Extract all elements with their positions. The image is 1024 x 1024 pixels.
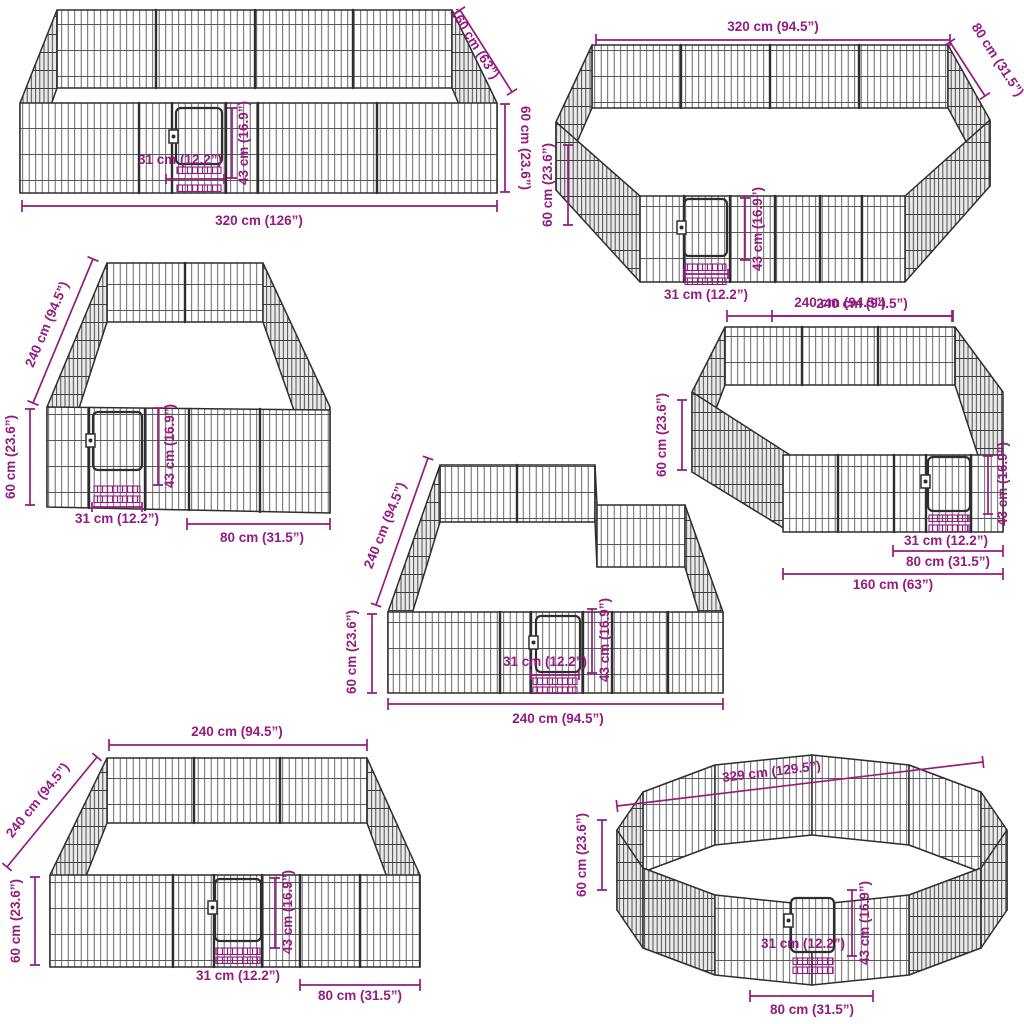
- dim-label-width-bottom: 240 cm (94.5”): [512, 711, 604, 726]
- dim-line-width-bottom: [388, 698, 723, 710]
- threshold-hatch: [177, 185, 221, 192]
- threshold-hatch: [533, 678, 577, 685]
- dim-label-height: 60 cm (23.6”): [3, 415, 18, 499]
- threshold-hatch: [685, 264, 726, 271]
- fence-far-wall: [812, 755, 909, 845]
- dim-line-height: [25, 409, 35, 505]
- pen-lshape-240x160: 240 cm (94.5”) 60 cm (23.6”) 43 cm (16.9…: [654, 295, 1010, 592]
- dim-label-gate-width: 31 cm (12.2”): [138, 152, 222, 167]
- fence-step-wall: [597, 505, 685, 567]
- dim-label-side: 80 cm (31.5”): [969, 20, 1024, 99]
- gate-knob-icon: [172, 135, 176, 139]
- dim-line-height: [500, 104, 510, 192]
- dim-label-gate-width: 31 cm (12.2”): [75, 511, 159, 526]
- dim-label-panel: 80 cm (31.5”): [906, 554, 990, 569]
- dim-label-gate-width: 31 cm (12.2”): [664, 287, 748, 302]
- threshold-hatch: [793, 967, 833, 974]
- pen-stepped-240x240: 240 cm (94.5”) 60 cm (23.6”) 43 cm (16.9…: [344, 456, 723, 726]
- dim-label-gate-height: 43 cm (16.9”): [236, 101, 251, 185]
- threshold-hatch: [929, 515, 969, 522]
- playpen-dimension-sheet: 43 cm (16.9”) 31 cm (12.2”) 320 cm (126”…: [0, 0, 1024, 1024]
- fence-far-wall: [909, 765, 981, 872]
- threshold-hatch: [94, 486, 140, 493]
- threshold-hatch: [929, 525, 969, 532]
- dim-label-width: 320 cm (126”): [215, 213, 303, 228]
- gate-door: [684, 199, 727, 256]
- diagram-canvas: 43 cm (16.9”) 31 cm (12.2”) 320 cm (126”…: [0, 0, 1024, 1024]
- pen-octagon-320x80: 320 cm (94.5”) 80 cm (31.5”) 60 cm (23.6…: [540, 19, 1024, 322]
- threshold-hatch: [94, 496, 140, 503]
- dim-label-gate-width: 31 cm (12.2”): [761, 936, 845, 951]
- threshold-hatch: [685, 278, 726, 285]
- threshold-hatch: [177, 167, 221, 174]
- dim-line-panel: [187, 518, 330, 530]
- dim-line-width-top: [727, 310, 953, 322]
- fence-back-wall: [725, 327, 955, 385]
- dim-label-gate-height: 43 cm (16.9”): [995, 442, 1010, 526]
- gate-door: [928, 457, 970, 511]
- gate-knob-icon: [680, 226, 684, 230]
- dim-label-panel: 80 cm (31.5”): [220, 530, 304, 545]
- dim-label-depth: 240 cm (94.5”): [361, 480, 409, 571]
- fence-back-wall: [107, 758, 367, 823]
- dim-label-gate-width: 31 cm (12.2”): [904, 533, 988, 548]
- dim-label-width-top: 240 cm (94.5”): [794, 295, 886, 310]
- dim-label-height: 60 cm (23.6”): [344, 610, 359, 694]
- dim-label-gate-height: 43 cm (16.9”): [280, 870, 295, 954]
- gate-knob-icon: [924, 480, 928, 484]
- dim-label-gate-height: 43 cm (16.9”): [597, 598, 612, 682]
- dim-label-gate-width: 31 cm (12.2”): [196, 968, 280, 983]
- dim-label-height: 60 cm (23.6”): [518, 106, 533, 190]
- dim-label-panel: 80 cm (31.5”): [770, 1002, 854, 1017]
- threshold-hatch: [793, 958, 833, 965]
- threshold-hatch: [533, 687, 577, 694]
- dim-label-depth: 240 cm (94.5”): [22, 279, 72, 369]
- dim-line-width-top: [109, 739, 367, 751]
- fence-far-wall: [643, 765, 715, 872]
- dim-label-gate-height: 43 cm (16.9”): [857, 881, 872, 965]
- dim-label-height: 60 cm (23.6”): [654, 393, 669, 477]
- dim-line-height: [30, 877, 40, 965]
- pen-rectangle-240x160: 240 cm (94.5”) 60 cm (23.6”) 43 cm (16.9…: [3, 257, 330, 545]
- dim-label-gate-width: 31 cm (12.2”): [503, 654, 587, 669]
- pen-ring-329: 329 cm (129.5”) 60 cm (23.6”) 43 cm (16.…: [574, 755, 1007, 1017]
- pen-square-240x240: 240 cm (94.5”) 240 cm (94.5”) 60 cm (23.…: [2, 724, 420, 1003]
- gate-door: [215, 879, 261, 941]
- dim-line-height: [367, 614, 377, 693]
- dim-label-gate-height: 43 cm (16.9”): [162, 404, 177, 488]
- dim-label-width-bottom: 160 cm (63”): [853, 577, 933, 592]
- dim-line-height: [677, 400, 687, 470]
- gate-knob-icon: [211, 906, 215, 910]
- threshold-hatch: [216, 948, 260, 955]
- pen-rectangle-320x160: 43 cm (16.9”) 31 cm (12.2”) 320 cm (126”…: [20, 6, 533, 228]
- fence-notch-wall: [692, 392, 790, 532]
- gate-knob-icon: [89, 439, 93, 443]
- dim-label-height: 60 cm (23.6”): [540, 143, 555, 227]
- dim-label-width-top: 240 cm (94.5”): [191, 724, 283, 739]
- dim-line-width-top: [596, 34, 950, 46]
- fence-front-wall: [640, 196, 905, 282]
- dim-label-panel: 80 cm (31.5”): [318, 988, 402, 1003]
- threshold-hatch: [216, 957, 260, 964]
- gate-knob-icon: [787, 919, 791, 923]
- fence-near-wall: [643, 868, 715, 975]
- gate-door: [93, 412, 142, 470]
- fence-near-wall: [909, 868, 981, 975]
- dim-label-height: 60 cm (23.6”): [8, 879, 23, 963]
- dim-line-width: [22, 200, 497, 212]
- dim-label-width-top: 320 cm (94.5”): [727, 19, 819, 34]
- dim-line-height: [597, 820, 607, 890]
- gate-knob-icon: [532, 641, 536, 645]
- dim-label-height: 60 cm (23.6”): [574, 813, 589, 897]
- fence-east-wall: [905, 120, 990, 282]
- dim-label-gate-height: 43 cm (16.9”): [750, 187, 765, 271]
- dim-line-panel: [750, 990, 873, 1002]
